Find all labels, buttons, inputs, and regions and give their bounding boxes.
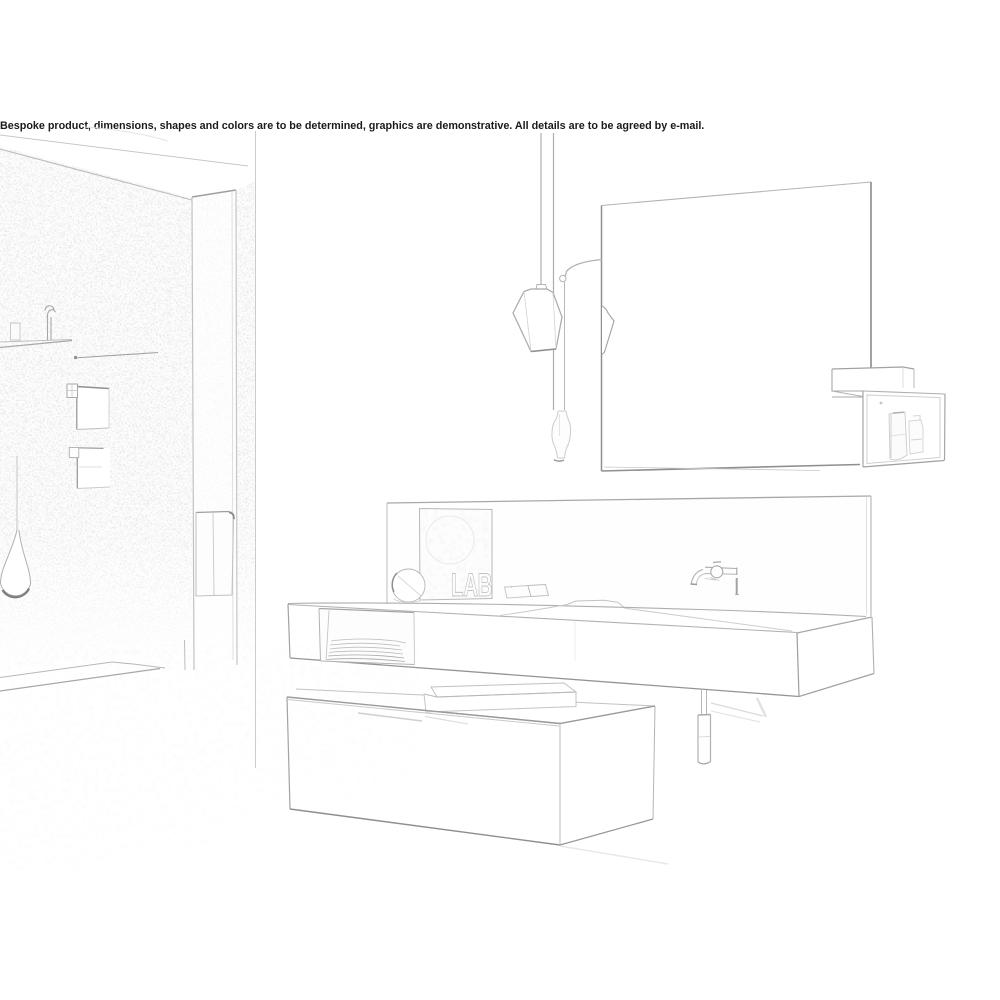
svg-text:LAB: LAB bbox=[451, 567, 492, 603]
